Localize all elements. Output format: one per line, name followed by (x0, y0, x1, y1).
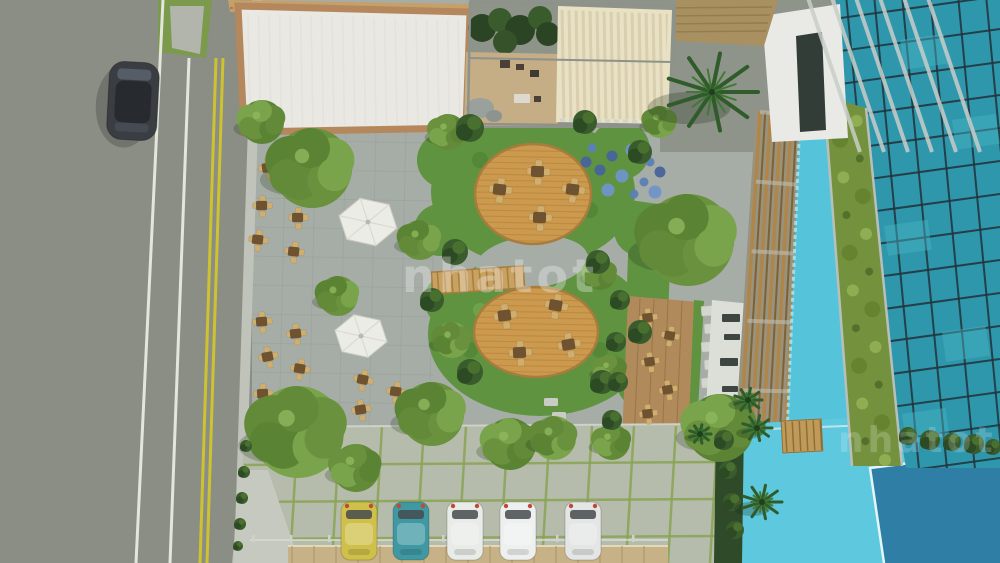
bush (628, 320, 652, 344)
bush (602, 410, 622, 430)
bush (238, 466, 250, 478)
deep-pool (870, 452, 1000, 563)
yellow-car (341, 502, 377, 560)
bush (573, 110, 597, 134)
bush (714, 430, 734, 450)
bush (726, 521, 744, 539)
bush (610, 290, 630, 310)
bush (719, 461, 737, 479)
median-sidewalk (170, 6, 204, 54)
bush (233, 541, 243, 551)
road (0, 0, 252, 563)
bush (608, 372, 628, 392)
stairwell-slot (796, 32, 826, 132)
bush (606, 332, 626, 352)
site-plan-svg: nhatot nhatot (0, 0, 1000, 563)
white-car-1 (447, 502, 483, 560)
aerial-site-render: nhatot nhatot (0, 0, 1000, 563)
white-car-3 (565, 502, 601, 560)
teal-car (393, 502, 429, 560)
bush (456, 114, 484, 142)
white-car-2 (500, 502, 536, 560)
bush (457, 359, 483, 385)
watermark-secondary: nhatot (838, 420, 997, 461)
bush (240, 440, 252, 452)
open-pergola (464, 0, 676, 128)
bush (236, 492, 248, 504)
watermark: nhatot (402, 249, 598, 303)
bush (628, 140, 652, 164)
pool-ladder-deck (781, 419, 823, 453)
bush (234, 518, 246, 530)
